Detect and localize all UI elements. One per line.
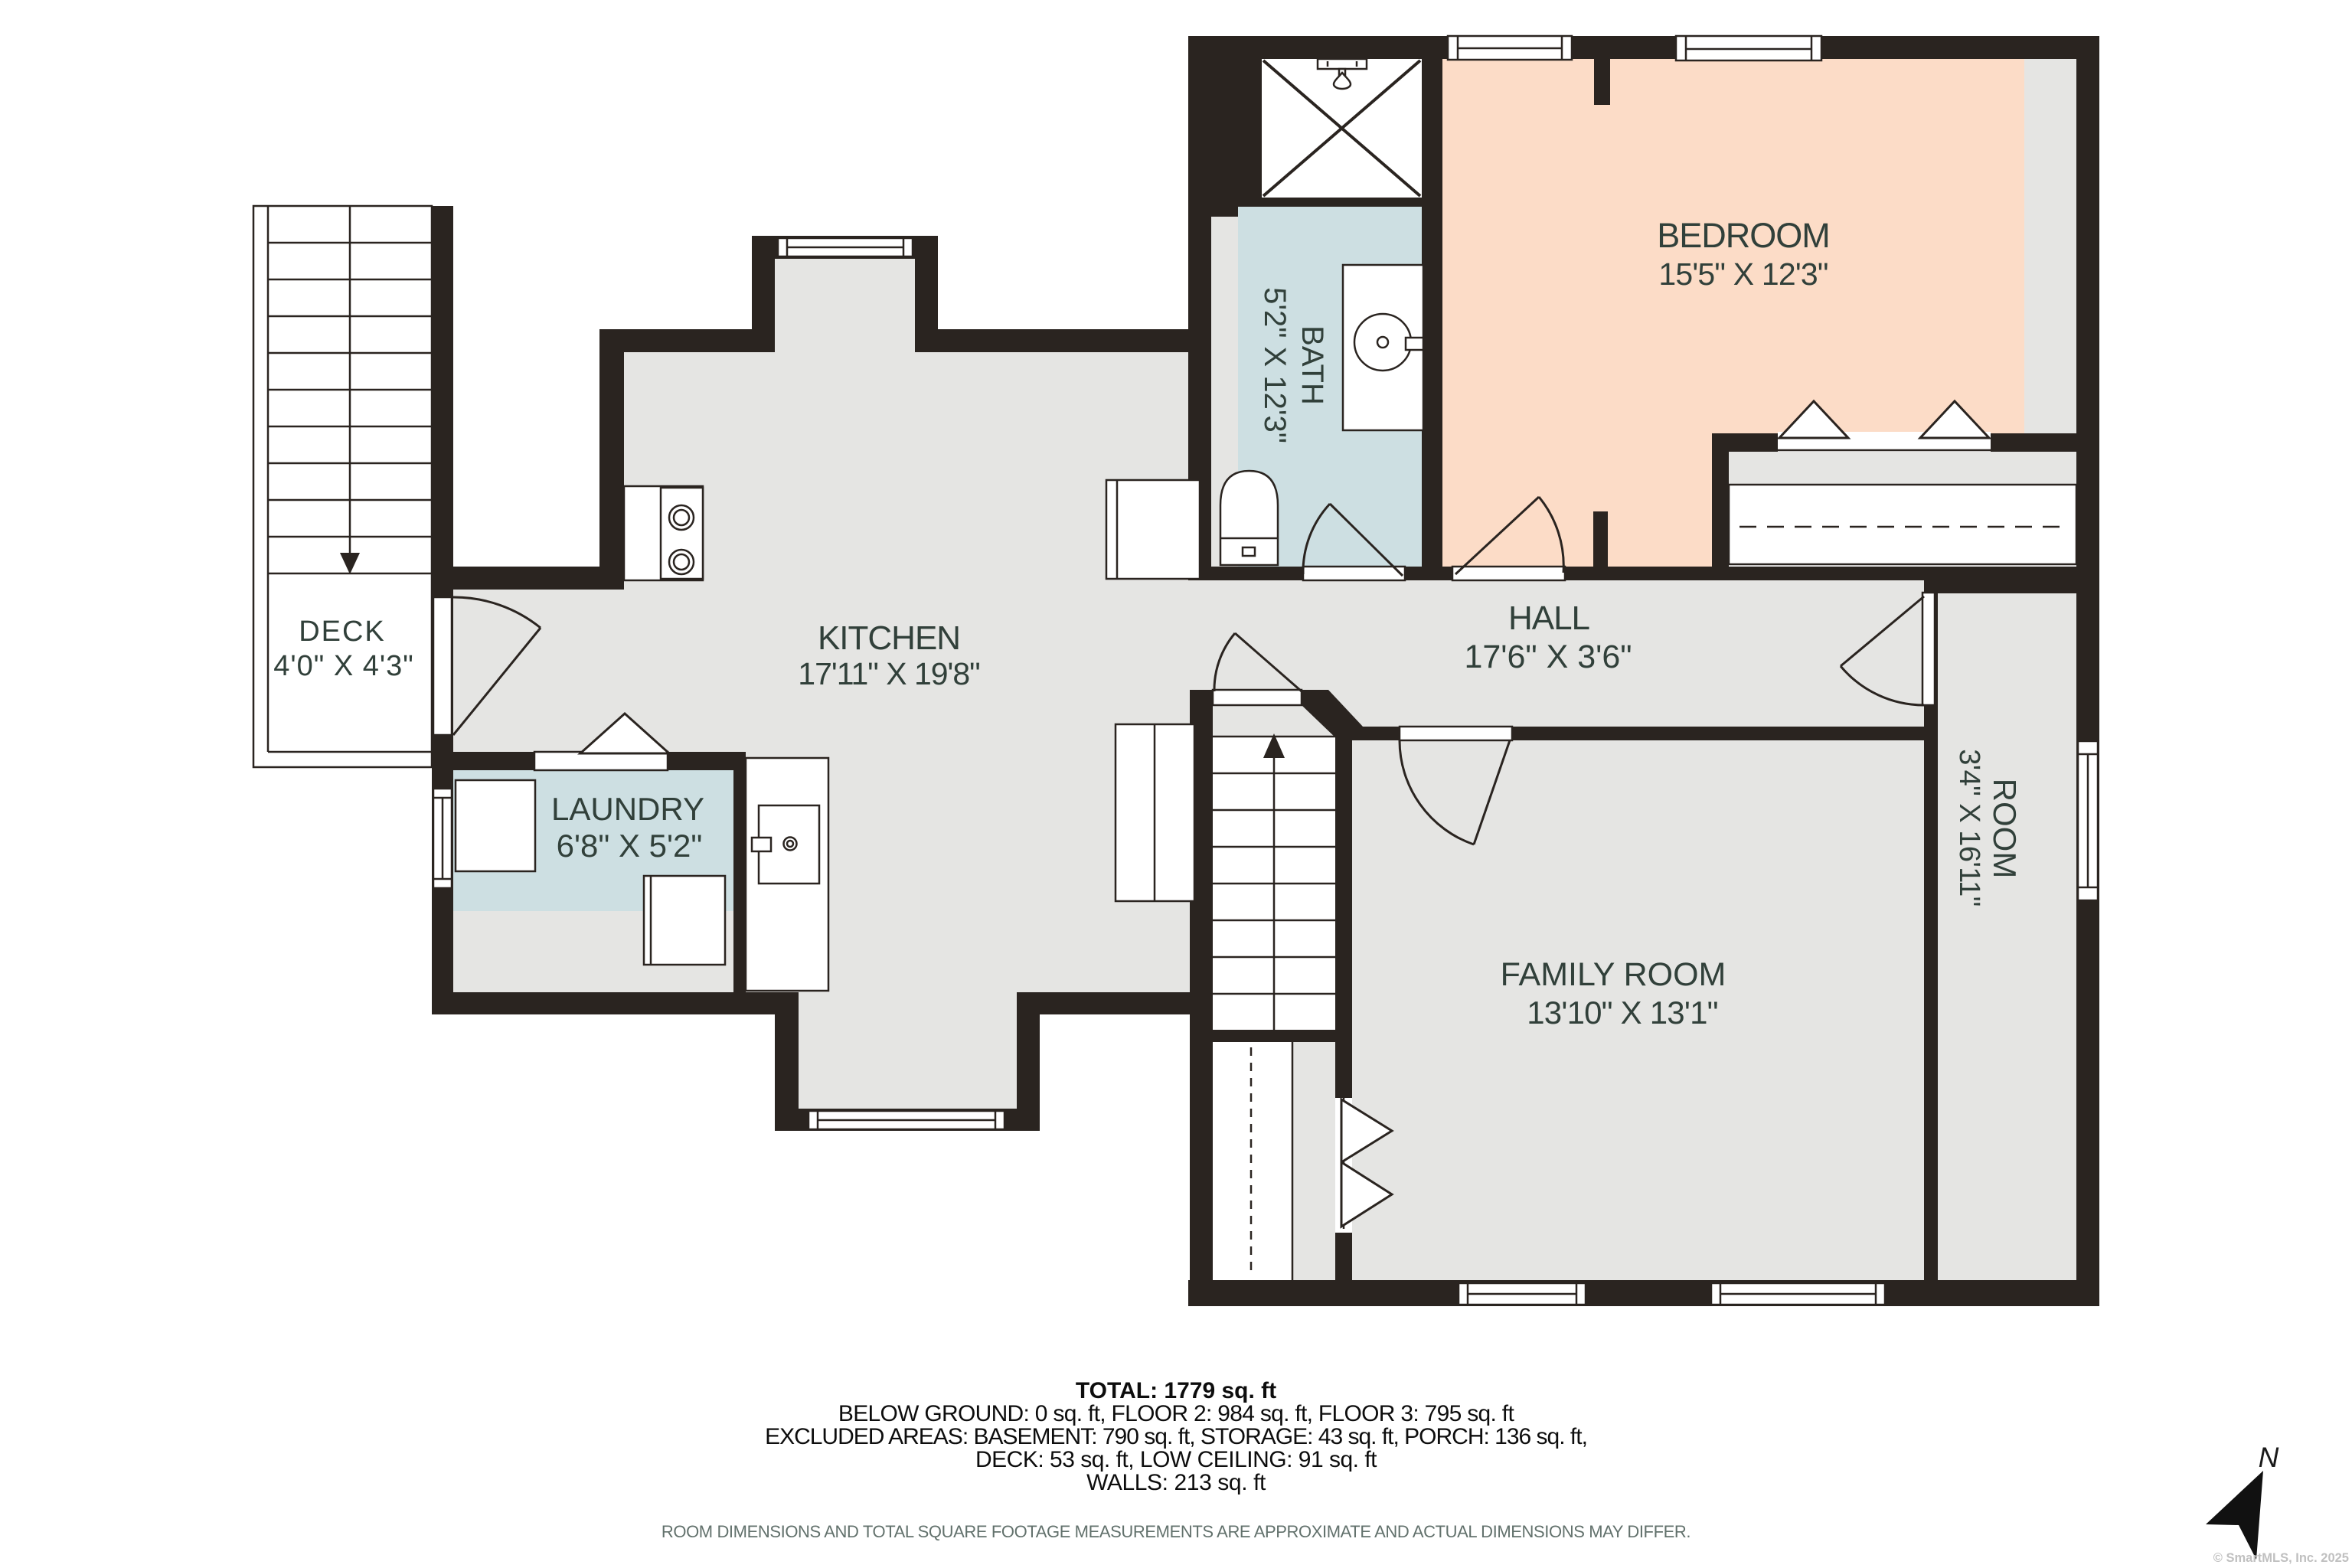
svg-text:13'10" X 13'1": 13'10" X 13'1": [1527, 995, 1718, 1031]
svg-text:6'8" X 5'2": 6'8" X 5'2": [557, 828, 703, 864]
svg-text:DECK: DECK: [299, 616, 386, 648]
svg-text:TOTAL: 1779 sq. ft: TOTAL: 1779 sq. ft: [1076, 1378, 1276, 1403]
svg-text:BATH: BATH: [1295, 325, 1329, 405]
svg-text:HALL: HALL: [1508, 599, 1590, 637]
svg-text:BELOW GROUND: 0 sq. ft, FLOOR: BELOW GROUND: 0 sq. ft, FLOOR 2: 984 sq.…: [838, 1401, 1515, 1426]
svg-text:N: N: [2259, 1442, 2279, 1473]
svg-text:17'6" X 3'6": 17'6" X 3'6": [1464, 639, 1632, 675]
svg-text:KITCHEN: KITCHEN: [818, 619, 960, 657]
svg-text:ROOM: ROOM: [1987, 779, 2023, 879]
svg-text:WALLS: 213 sq. ft: WALLS: 213 sq. ft: [1086, 1470, 1266, 1495]
svg-text:17'11" X 19'8": 17'11" X 19'8": [798, 656, 979, 691]
svg-text:EXCLUDED AREAS: BASEMENT: 790: EXCLUDED AREAS: BASEMENT: 790 sq. ft, ST…: [765, 1424, 1587, 1449]
svg-text:4'0" X 4'3": 4'0" X 4'3": [273, 650, 413, 682]
svg-text:ROOM DIMENSIONS AND TOTAL SQUA: ROOM DIMENSIONS AND TOTAL SQUARE FOOTAGE…: [661, 1522, 1690, 1541]
svg-text:3'4" X 16'11": 3'4" X 16'11": [1953, 749, 1985, 906]
svg-text:FAMILY ROOM: FAMILY ROOM: [1501, 956, 1726, 993]
svg-text:© SmartMLS, Inc. 2025: © SmartMLS, Inc. 2025: [2213, 1551, 2349, 1565]
svg-text:15'5" X 12'3": 15'5" X 12'3": [1658, 256, 1828, 292]
svg-text:LAUNDRY: LAUNDRY: [551, 791, 704, 827]
svg-text:DECK: 53 sq. ft, LOW CEILING:: DECK: 53 sq. ft, LOW CEILING: 91 sq. ft: [975, 1447, 1377, 1472]
svg-text:5'2" X 12'3": 5'2" X 12'3": [1258, 287, 1292, 443]
svg-text:BEDROOM: BEDROOM: [1657, 216, 1830, 255]
